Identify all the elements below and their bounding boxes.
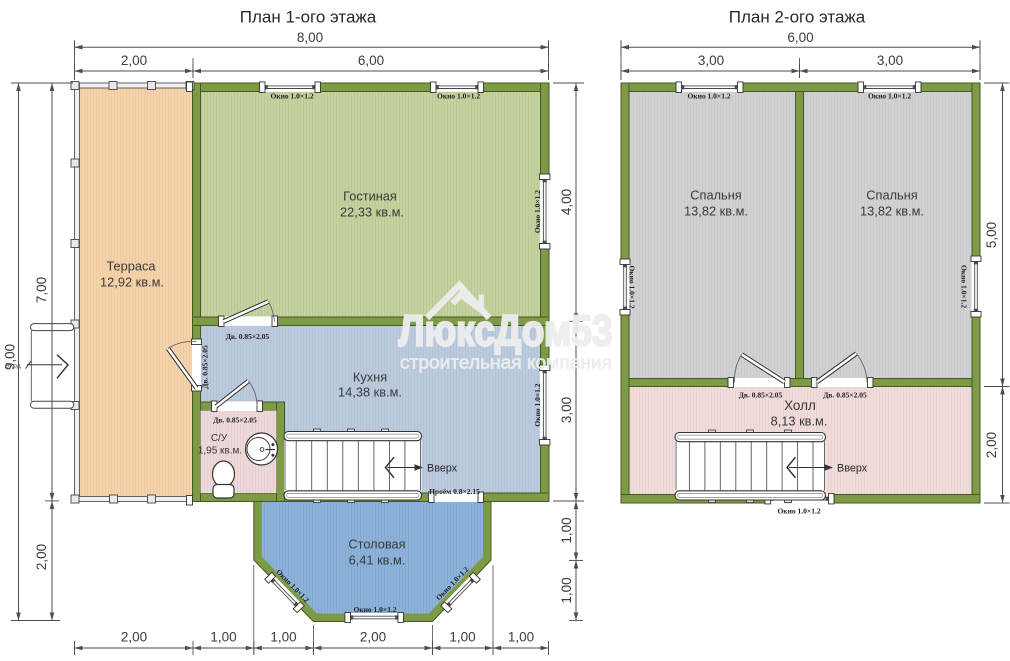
svg-text:Холл: Холл bbox=[784, 398, 816, 413]
svg-text:Окно 1.0×1.2: Окно 1.0×1.2 bbox=[437, 91, 480, 100]
svg-text:Столовая: Столовая bbox=[348, 537, 405, 552]
svg-text:13,82 кв.м.: 13,82 кв.м. bbox=[684, 204, 748, 219]
svg-text:Окно 1.0×1.2: Окно 1.0×1.2 bbox=[353, 605, 396, 614]
svg-text:Кухня: Кухня bbox=[353, 370, 387, 385]
svg-text:1,00: 1,00 bbox=[559, 577, 574, 603]
svg-text:6,00: 6,00 bbox=[787, 30, 813, 45]
svg-text:Вверх: Вверх bbox=[427, 462, 458, 474]
svg-text:2,00: 2,00 bbox=[360, 629, 386, 644]
svg-text:Дв. 0.85×2.05: Дв. 0.85×2.05 bbox=[823, 391, 867, 400]
svg-text:Терраса: Терраса bbox=[106, 259, 156, 274]
svg-text:План 1-ого этажа: План 1-ого этажа bbox=[240, 8, 377, 27]
svg-text:6,41 кв.м.: 6,41 кв.м. bbox=[349, 553, 406, 568]
svg-text:Окно 1.0×1.2: Окно 1.0×1.2 bbox=[777, 507, 820, 516]
svg-text:Окно 1.0×1.2: Окно 1.0×1.2 bbox=[533, 190, 542, 233]
svg-text:13,82 кв.м.: 13,82 кв.м. bbox=[860, 204, 924, 219]
svg-text:7,00: 7,00 bbox=[34, 277, 49, 303]
svg-text:3,00: 3,00 bbox=[559, 397, 574, 423]
svg-text:4,00: 4,00 bbox=[559, 189, 574, 215]
svg-text:Проём 0.8×2.15: Проём 0.8×2.15 bbox=[429, 487, 480, 496]
svg-text:Спальня: Спальня bbox=[866, 188, 917, 203]
svg-text:Гостиная: Гостиная bbox=[343, 189, 397, 204]
svg-text:1,00: 1,00 bbox=[270, 629, 296, 644]
svg-text:Спальня: Спальня bbox=[690, 188, 741, 203]
svg-text:1,95 кв.м.: 1,95 кв.м. bbox=[198, 446, 242, 457]
svg-text:2,00: 2,00 bbox=[34, 544, 49, 570]
svg-text:5,00: 5,00 bbox=[984, 222, 999, 248]
svg-text:ЛюксДом53: ЛюксДом53 bbox=[399, 307, 613, 356]
svg-text:1,00: 1,00 bbox=[508, 629, 534, 644]
svg-text:1,00: 1,00 bbox=[559, 517, 574, 543]
svg-text:Вверх: Вверх bbox=[837, 462, 868, 474]
svg-text:2,00: 2,00 bbox=[121, 53, 147, 68]
svg-text:3,00: 3,00 bbox=[877, 53, 903, 68]
svg-text:Окно 1.0×1.2: Окно 1.0×1.2 bbox=[868, 91, 911, 100]
svg-text:6,00: 6,00 bbox=[358, 53, 384, 68]
svg-text:строительная компания: строительная компания bbox=[400, 352, 612, 373]
svg-text:1,00: 1,00 bbox=[210, 629, 236, 644]
svg-text:Дв. 0.85×2.05: Дв. 0.85×2.05 bbox=[226, 332, 270, 341]
svg-text:14,38 кв.м.: 14,38 кв.м. bbox=[338, 385, 402, 400]
svg-text:9,00: 9,00 bbox=[3, 344, 18, 370]
svg-text:С/У: С/У bbox=[211, 433, 228, 444]
svg-text:Окно 1.0×1.2: Окно 1.0×1.2 bbox=[270, 91, 313, 100]
svg-text:8,13 кв.м.: 8,13 кв.м. bbox=[771, 414, 828, 429]
svg-text:Окно 1.0×1.2: Окно 1.0×1.2 bbox=[628, 265, 637, 308]
svg-text:Дв. 0.85×2.05: Дв. 0.85×2.05 bbox=[739, 391, 783, 400]
svg-text:22,33 кв.м.: 22,33 кв.м. bbox=[340, 205, 404, 220]
svg-text:3,00: 3,00 bbox=[698, 53, 724, 68]
svg-text:2,00: 2,00 bbox=[121, 629, 147, 644]
svg-text:8,00: 8,00 bbox=[297, 30, 323, 45]
svg-text:1,00: 1,00 bbox=[449, 629, 475, 644]
svg-text:Окно 1.0×1.2: Окно 1.0×1.2 bbox=[960, 265, 969, 308]
svg-text:12,92 кв.м.: 12,92 кв.м. bbox=[100, 275, 164, 290]
svg-text:План 2-ого этажа: План 2-ого этажа bbox=[729, 8, 866, 27]
svg-text:Окно 1.0×1.2: Окно 1.0×1.2 bbox=[533, 383, 542, 426]
svg-text:Окно 1.0×1.2: Окно 1.0×1.2 bbox=[687, 91, 730, 100]
svg-text:Дв. 0.85×2.05: Дв. 0.85×2.05 bbox=[213, 416, 257, 425]
svg-text:2,00: 2,00 bbox=[984, 432, 999, 458]
svg-text:Дв. 0.85×2.05: Дв. 0.85×2.05 bbox=[201, 345, 210, 389]
